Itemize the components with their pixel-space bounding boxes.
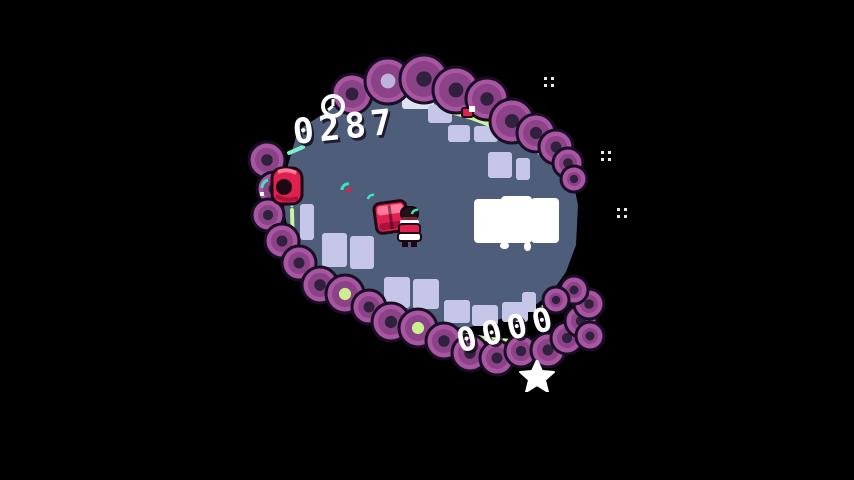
- distant-red-enemy: [462, 106, 475, 117]
- sparkle-icon: [617, 208, 627, 218]
- game-screen[interactable]: 0287 0000: [0, 0, 854, 480]
- player-character: [398, 207, 421, 247]
- sparkle-icon: [544, 77, 554, 87]
- sign-blank: [474, 196, 559, 251]
- arena: [0, 0, 854, 480]
- star-icon: [519, 360, 555, 392]
- sparkle-icon: [601, 151, 611, 161]
